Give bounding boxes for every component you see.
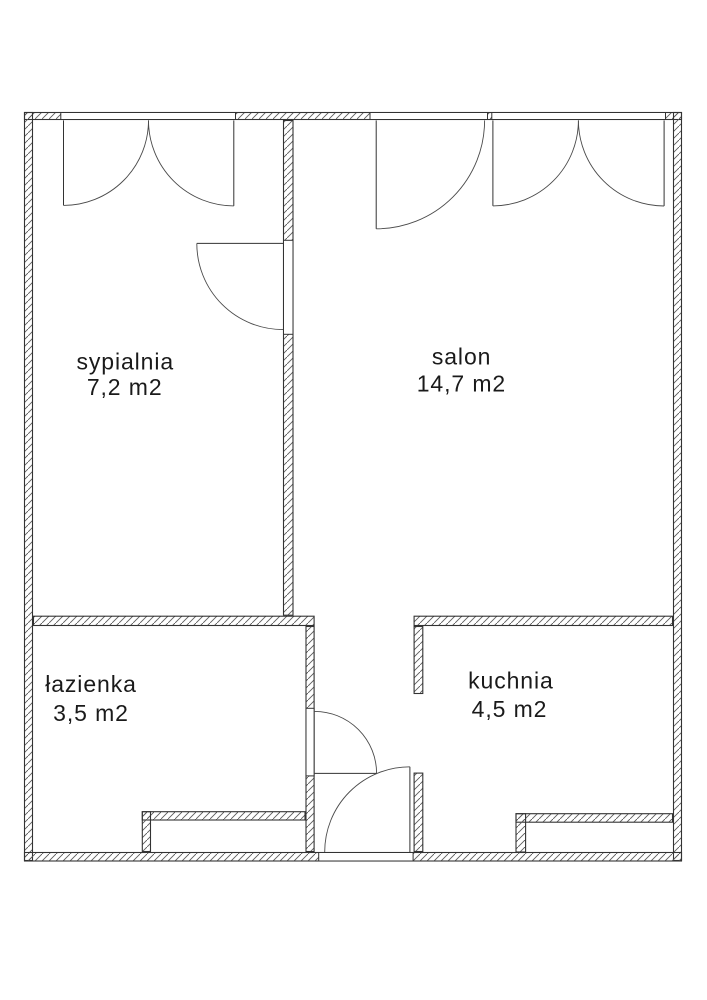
svg-text:łazienka: łazienka: [45, 671, 137, 697]
svg-text:kuchnia: kuchnia: [468, 668, 554, 694]
svg-text:salon: salon: [432, 343, 491, 369]
svg-text:7,2 m2: 7,2 m2: [87, 374, 163, 400]
svg-text:3,5 m2: 3,5 m2: [53, 700, 129, 726]
svg-text:sypialnia: sypialnia: [76, 348, 174, 374]
svg-text:4,5 m2: 4,5 m2: [472, 696, 548, 722]
svg-text:14,7 m2: 14,7 m2: [417, 370, 506, 396]
